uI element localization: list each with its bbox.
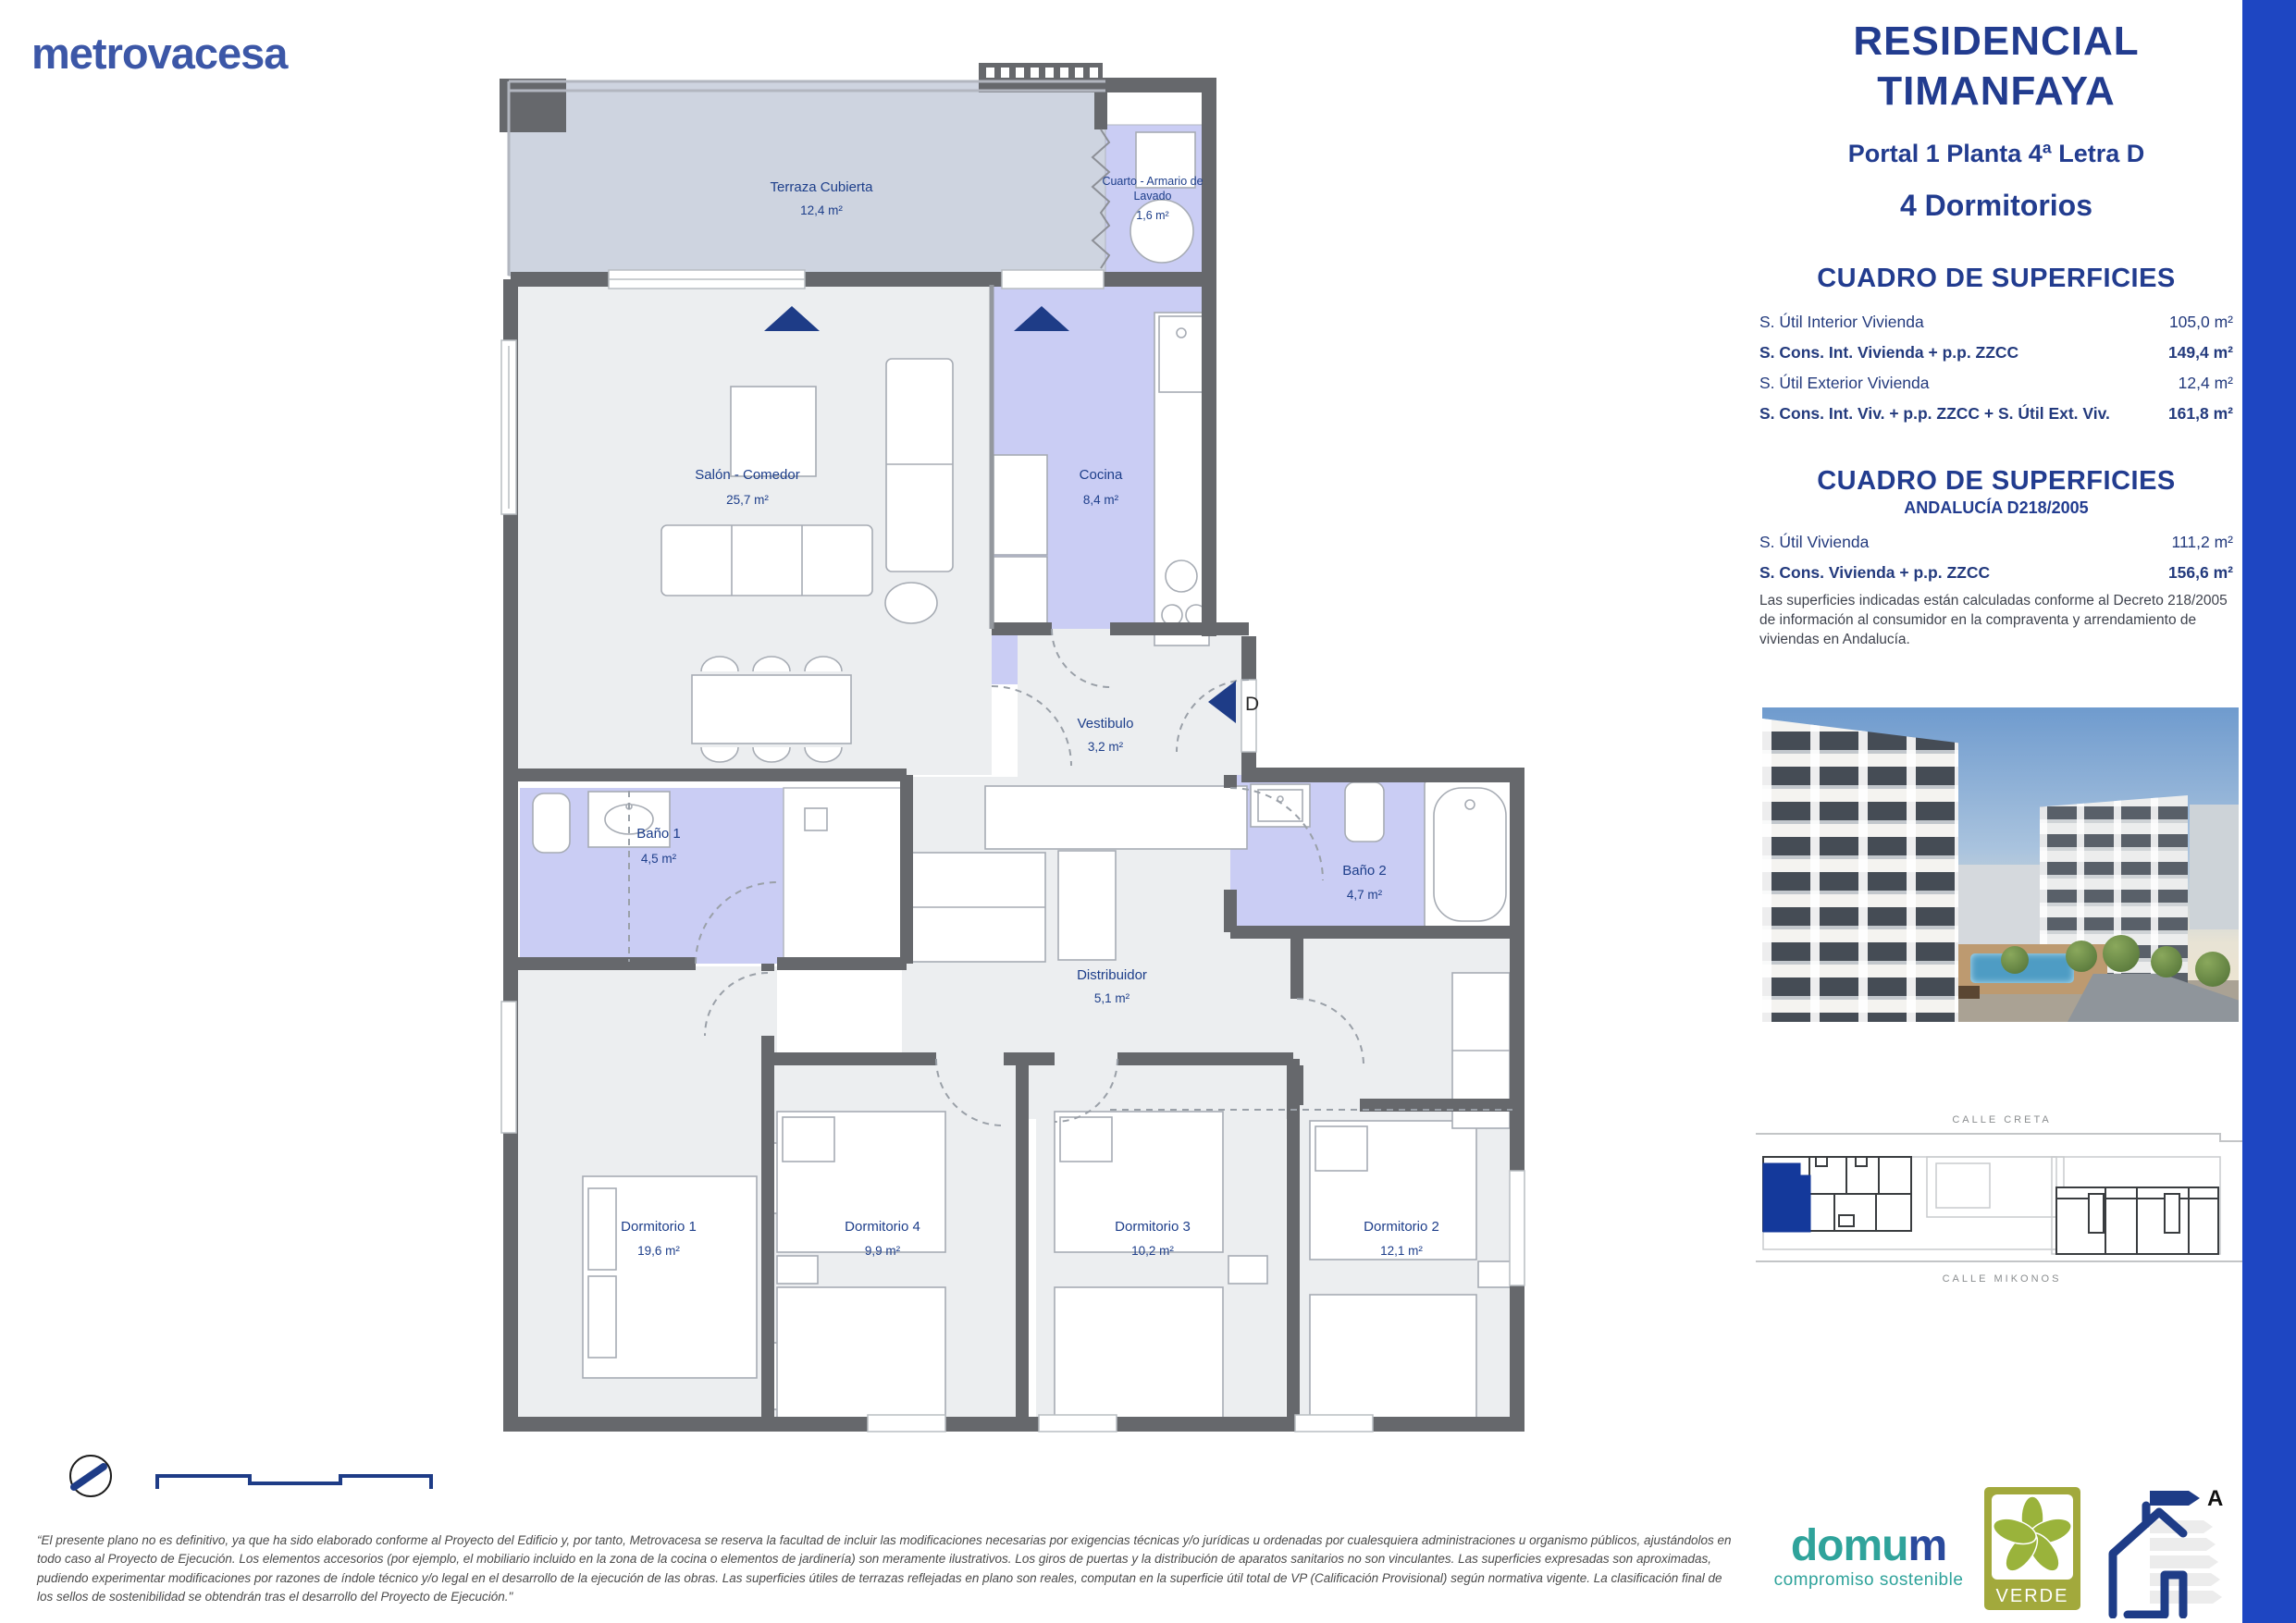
apartment-building-left xyxy=(1762,719,1958,1022)
accent-side-bar xyxy=(2242,0,2296,1623)
surface-table-andalucia: CUADRO DE SUPERFICIES ANDALUCÍA D218/200… xyxy=(1747,466,2246,650)
verde-label: VERDE xyxy=(1996,1586,2069,1606)
svg-text:4,7 m²: 4,7 m² xyxy=(1347,888,1383,902)
room-label-salon: Salón - Comedor xyxy=(695,467,799,483)
background-building xyxy=(2190,805,2239,929)
energy-rating-letter: A xyxy=(2207,1486,2223,1511)
metrovacesa-logo: metrovacesa xyxy=(31,28,287,79)
room-label-terraza: Terraza Cubierta xyxy=(771,179,874,195)
tree xyxy=(2195,952,2230,987)
room-label-lavado: Cuarto - Armario de xyxy=(1102,175,1203,188)
building-render-image xyxy=(1762,707,2239,1022)
table-row: S. Útil Vivienda111,2 m² xyxy=(1759,527,2233,558)
dwelling-type: 4 Dormitorios xyxy=(1747,189,2246,223)
energy-rating-icon: A xyxy=(2092,1478,2227,1618)
room-label-dormitorio3: Dormitorio 3 xyxy=(1115,1219,1191,1235)
svg-text:12,4 m²: 12,4 m² xyxy=(800,203,843,217)
domum-logo: domum compromiso sostenible xyxy=(1758,1524,1980,1591)
scale-bar xyxy=(157,1476,431,1489)
entrance-letter: D xyxy=(1245,694,1259,715)
svg-text:5,1 m²: 5,1 m² xyxy=(1094,991,1130,1005)
floorplan-sheet: metrovacesa xyxy=(0,0,2296,1623)
tree xyxy=(2066,941,2097,972)
svg-text:9,9 m²: 9,9 m² xyxy=(865,1244,901,1258)
legal-disclaimer: “El presente plano no es definitivo, ya … xyxy=(37,1531,1739,1607)
compass-and-scale xyxy=(35,1441,461,1506)
svg-text:3,2 m²: 3,2 m² xyxy=(1088,740,1124,754)
surface-table-subtitle: ANDALUCÍA D218/2005 xyxy=(1747,498,2246,518)
svg-text:25,7 m²: 25,7 m² xyxy=(726,493,769,507)
svg-text:4,5 m²: 4,5 m² xyxy=(641,852,677,866)
info-panel: RESIDENCIAL TIMANFAYA Portal 1 Planta 4ª… xyxy=(1747,17,2246,650)
room-label-bano2: Baño 2 xyxy=(1342,863,1387,879)
table-row: S. Cons. Vivienda + p.p. ZZCC156,6 m² xyxy=(1759,558,2233,588)
room-label-distribuidor: Distribuidor xyxy=(1077,967,1147,983)
page-title: RESIDENCIAL TIMANFAYA xyxy=(1747,17,2246,116)
street-name-top: CALLE CRETA xyxy=(1952,1114,2051,1125)
surface-table-title: CUADRO DE SUPERFICIES xyxy=(1747,264,2246,294)
floor-plan: D Terraza Cubierta 12,4 m² Cuarto - Arma… xyxy=(500,37,1545,1433)
surface-table: CUADRO DE SUPERFICIES S. Útil Interior V… xyxy=(1747,264,2246,429)
room-label-vestibulo: Vestibulo xyxy=(1078,716,1134,732)
unit-location: Portal 1 Planta 4ª Letra D xyxy=(1747,140,2246,168)
tree xyxy=(2001,946,2029,974)
svg-text:Lavado: Lavado xyxy=(1133,190,1171,203)
street-name-bottom: CALLE MIKONOS xyxy=(1943,1273,2062,1285)
room-label-dormitorio1: Dormitorio 1 xyxy=(621,1219,697,1235)
table-row: S. Útil Interior Vivienda105,0 m² xyxy=(1759,307,2233,338)
site-key-plan: CALLE CRETA CALLE MIKONOS xyxy=(1747,1106,2257,1291)
tree xyxy=(2151,946,2182,977)
table-row: S. Útil Exterior Vivienda12,4 m² xyxy=(1759,368,2233,399)
svg-text:1,6 m²: 1,6 m² xyxy=(1136,209,1168,222)
room-label-dormitorio4: Dormitorio 4 xyxy=(845,1219,920,1235)
table-row: S. Cons. Int. Viv. + p.p. ZZCC + S. Útil… xyxy=(1759,399,2233,429)
room-label-bano1: Baño 1 xyxy=(636,826,681,842)
verde-certificate-logo: VERDE xyxy=(1984,1487,2080,1610)
svg-text:19,6 m²: 19,6 m² xyxy=(637,1244,680,1258)
room-label-dormitorio2: Dormitorio 2 xyxy=(1364,1219,1439,1235)
svg-text:8,4 m²: 8,4 m² xyxy=(1083,493,1119,507)
svg-text:10,2 m²: 10,2 m² xyxy=(1131,1244,1174,1258)
table-row: S. Cons. Int. Vivienda + p.p. ZZCC149,4 … xyxy=(1759,338,2233,368)
decree-note: Las superficies indicadas están calculad… xyxy=(1759,592,2233,650)
surface-table-title: CUADRO DE SUPERFICIES xyxy=(1747,466,2246,497)
tree xyxy=(2103,935,2140,972)
room-label-cocina: Cocina xyxy=(1080,467,1123,483)
domum-tagline: compromiso sostenible xyxy=(1758,1570,1980,1591)
svg-text:12,1 m²: 12,1 m² xyxy=(1380,1244,1423,1258)
